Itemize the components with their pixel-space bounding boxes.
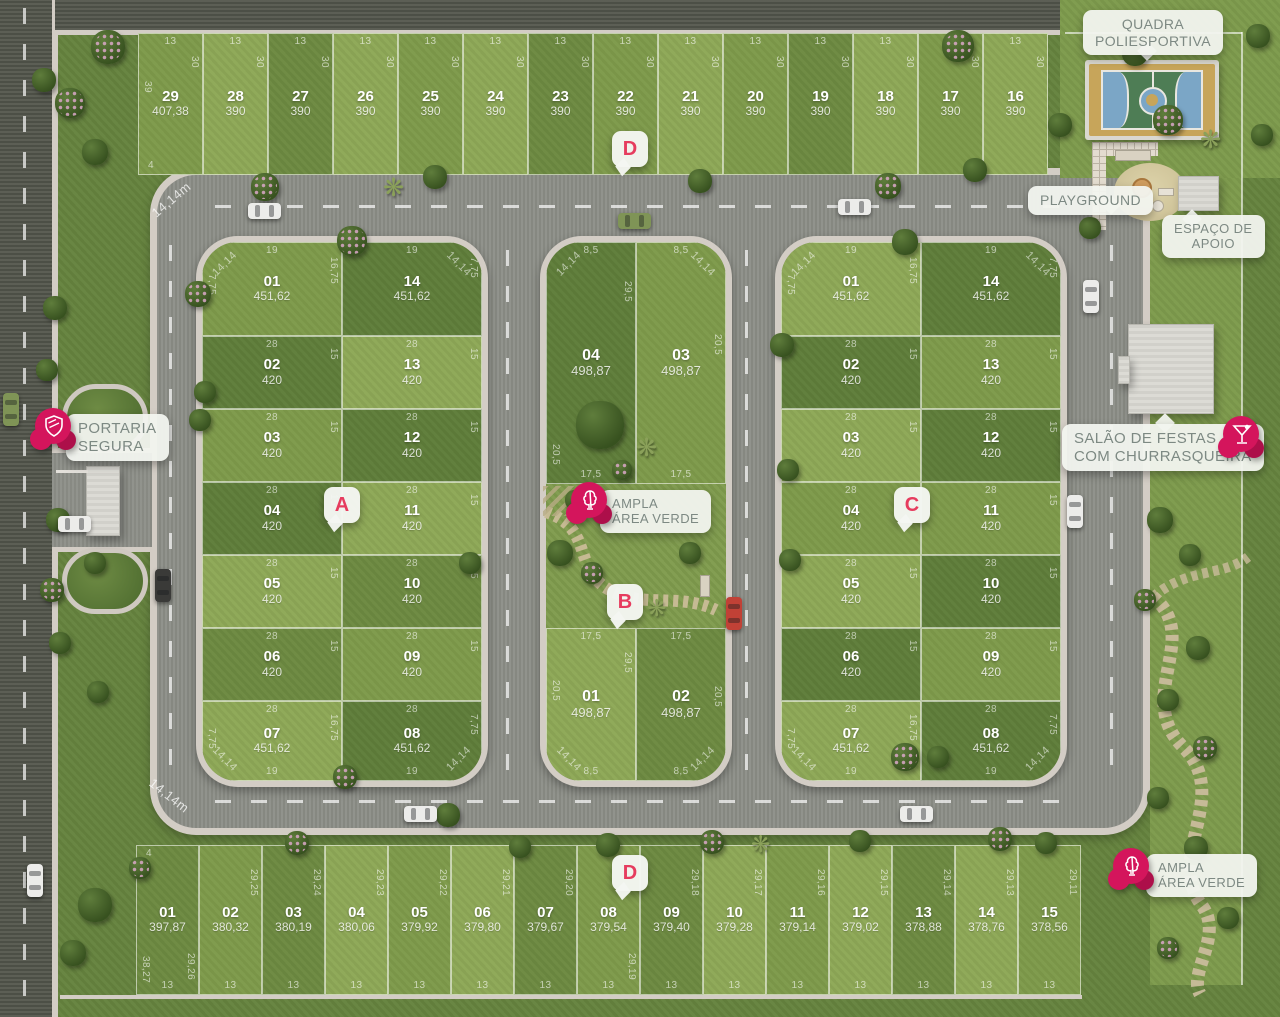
- lot-c-10[interactable]: 104202815: [921, 555, 1061, 628]
- lot-dimension: 13: [703, 981, 766, 991]
- lot-dimension: 8,5: [546, 246, 636, 256]
- lot-number: 11: [983, 503, 999, 520]
- lot-area: 397,87: [149, 921, 186, 935]
- lot-dimension: 15: [328, 567, 338, 579]
- bush-tree: [78, 888, 112, 922]
- street-ab-lane-dashes: [506, 250, 509, 775]
- lot-number: 01: [843, 274, 860, 291]
- lot-bottom-03[interactable]: 03380,191329,24: [262, 845, 325, 995]
- lot-top-18[interactable]: 183901330: [853, 33, 918, 175]
- lot-dimension: 29,17: [752, 869, 762, 896]
- lot-c-08[interactable]: 08451,6228197,75: [921, 701, 1061, 781]
- lot-dimension: 13: [593, 37, 658, 47]
- loop-top-lane-dashes: [215, 205, 1075, 208]
- lot-area: 379,54: [590, 921, 627, 935]
- bush-tree: [87, 681, 109, 703]
- lot-area: 420: [402, 447, 422, 461]
- badge-quadra-b: B: [607, 584, 643, 620]
- lot-bottom-13[interactable]: 13378,881329,14: [892, 845, 955, 995]
- lot-area: 390: [225, 105, 245, 119]
- lot-number: 21: [682, 89, 699, 106]
- lot-dimension: 13: [268, 37, 333, 47]
- lot-dimension: 19: [342, 767, 482, 777]
- lot-area: 390: [615, 105, 635, 119]
- lot-area: 380,06: [338, 921, 375, 935]
- car: [1067, 495, 1083, 528]
- lot-number: 06: [474, 905, 491, 922]
- lot-a-06[interactable]: 064202815: [202, 628, 342, 701]
- car: [900, 806, 933, 822]
- lot-area: 498,87: [661, 364, 701, 379]
- lot-c-06[interactable]: 064202815: [781, 628, 921, 701]
- lot-dimension: 16,75: [328, 714, 338, 741]
- lot-dimension: 8,5: [636, 246, 726, 256]
- lot-area: 451,62: [973, 290, 1010, 304]
- lot-dimension: 13: [199, 981, 262, 991]
- lot-dimension: 30: [709, 56, 719, 68]
- lot-dimension: 28: [202, 559, 342, 569]
- flowering-tree: [700, 830, 724, 854]
- lot-area: 420: [981, 447, 1001, 461]
- top-street-road: [55, 0, 1072, 30]
- bottom-row-sidewalk: [60, 995, 1082, 999]
- lot-dimension: 29,21: [500, 869, 510, 896]
- lot-dimension: 16,75: [907, 714, 917, 741]
- lot-dimension: 30: [579, 56, 589, 68]
- lot-dimension: 13: [955, 981, 1018, 991]
- lot-area: 420: [262, 447, 282, 461]
- lot-bottom-02[interactable]: 02380,321329,25: [199, 845, 262, 995]
- lot-dimension: 15: [468, 421, 478, 433]
- lot-number: 09: [404, 649, 421, 666]
- lot-dimension: 30: [449, 56, 459, 68]
- lot-number: 02: [672, 688, 690, 706]
- bush-tree: [1035, 832, 1057, 854]
- car: [404, 806, 437, 822]
- lot-dimension: 28: [342, 340, 482, 350]
- lot-dimension: 29,15: [878, 869, 888, 896]
- lot-area: 420: [841, 593, 861, 607]
- bush-tree: [777, 459, 799, 481]
- lot-dimension: 30: [319, 56, 329, 68]
- lot-number: 10: [404, 576, 421, 593]
- palm-tree: ❋: [1200, 128, 1221, 153]
- lot-area: 420: [981, 520, 1001, 534]
- lot-top-26[interactable]: 263901330: [333, 33, 398, 175]
- bush-tree: [36, 359, 58, 381]
- label-area-verde-central: AMPLA ÁREA VERDE: [600, 490, 711, 533]
- lot-dimension: 13: [138, 37, 203, 47]
- lot-top-20[interactable]: 203901330: [723, 33, 788, 175]
- lot-number: 16: [1007, 89, 1024, 106]
- flowering-tree: [988, 827, 1012, 851]
- lot-dimension: 29,14: [941, 869, 951, 896]
- lot-dimension: 29,18: [689, 869, 699, 896]
- lot-area: 380,32: [212, 921, 249, 935]
- lot-number: 03: [264, 430, 281, 447]
- lot-dimension: 28: [781, 705, 921, 715]
- palm-tree: ❋: [383, 176, 404, 201]
- gatehouse-building: [86, 466, 120, 536]
- lot-c-11[interactable]: 114202815: [921, 482, 1061, 555]
- lot-number: 19: [812, 89, 829, 106]
- lot-number: 11: [404, 503, 420, 520]
- lot-number: 12: [404, 430, 421, 447]
- bush-tree: [1246, 24, 1270, 48]
- court-bench: [1115, 150, 1151, 161]
- lot-a-07[interactable]: 07451,62281916,757,75: [202, 701, 342, 781]
- bush-tree: [688, 169, 712, 193]
- flowering-tree: [285, 831, 309, 855]
- flowering-tree: [1193, 736, 1217, 760]
- southeast-winding-path: [1128, 552, 1278, 997]
- court-zone-left: [1103, 72, 1129, 128]
- lot-bottom-07[interactable]: 07379,671329,20: [514, 845, 577, 995]
- lot-dimension: 28: [921, 340, 1061, 350]
- flowering-tree: [891, 743, 919, 771]
- flowering-tree: [581, 562, 603, 584]
- lot-dimension: 28: [202, 632, 342, 642]
- playground-bench: [1158, 188, 1174, 196]
- lot-dimension: 15: [907, 567, 917, 579]
- lot-area: 390: [355, 105, 375, 119]
- lot-dimension: 29,16: [815, 869, 825, 896]
- lot-number: 15: [1041, 905, 1058, 922]
- lot-dimension: 38,27: [140, 956, 150, 983]
- lot-dimension: 13: [788, 37, 853, 47]
- lot-area: 407,38: [152, 105, 189, 119]
- lot-dimension: 30: [839, 56, 849, 68]
- badge-letter: C: [905, 494, 919, 517]
- lot-dimension: 28: [781, 559, 921, 569]
- lot-bottom-06[interactable]: 06379,801329,21: [451, 845, 514, 995]
- lot-dimension: 30: [189, 56, 199, 68]
- lot-dimension: 30: [644, 56, 654, 68]
- lot-bottom-15[interactable]: 15378,561329,11: [1018, 845, 1081, 995]
- lot-number: 04: [264, 503, 281, 520]
- lot-dimension: 15: [907, 348, 917, 360]
- support-space-building: [1178, 176, 1219, 211]
- bush-tree: [49, 632, 71, 654]
- flowering-tree: [185, 281, 211, 307]
- lot-a-02[interactable]: 024202815: [202, 336, 342, 409]
- lot-dimension: 28: [921, 632, 1061, 642]
- bush-tree: [194, 381, 216, 403]
- lot-dimension: 28: [921, 486, 1061, 496]
- bush-tree: [1079, 217, 1101, 239]
- label-line: ESPAÇO DE: [1174, 221, 1253, 236]
- lot-dimension: 7,75: [785, 274, 795, 295]
- lot-area: 390: [810, 105, 830, 119]
- lot-number: 04: [843, 503, 860, 520]
- lot-dimension: 30: [904, 56, 914, 68]
- label-espaco-apoio: ESPAÇO DE APOIO: [1162, 215, 1265, 258]
- lot-dimension: 13: [723, 37, 788, 47]
- lot-number: 12: [983, 430, 1000, 447]
- lot-dimension: 28: [781, 632, 921, 642]
- lot-dimension: 28: [202, 705, 342, 715]
- lot-dimension: 13: [1018, 981, 1081, 991]
- lot-dimension: 13: [325, 981, 388, 991]
- lot-number: 08: [404, 726, 421, 743]
- salao-cocktail-icon: [1218, 416, 1266, 464]
- lot-number: 04: [348, 905, 365, 922]
- lot-a-08[interactable]: 08451,6228197,75: [342, 701, 482, 781]
- lot-number: 10: [726, 905, 743, 922]
- bush-tree: [679, 542, 701, 564]
- lot-bottom-05[interactable]: 05379,921329,22: [388, 845, 451, 995]
- lot-dimension: 7,75: [468, 714, 478, 735]
- lot-area: 390: [745, 105, 765, 119]
- lot-bottom-09[interactable]: 09379,401329,18: [640, 845, 703, 995]
- bush-tree: [1179, 544, 1201, 566]
- label-line: APOIO: [1174, 236, 1253, 251]
- lot-area: 390: [875, 105, 895, 119]
- lot-dimension: 13: [388, 981, 451, 991]
- lot-dimension: 30: [384, 56, 394, 68]
- lot-dimension: 20,5: [712, 334, 722, 355]
- lot-dimension: 13: [333, 37, 398, 47]
- lot-a-04[interactable]: 044202815: [202, 482, 342, 555]
- lot-number: 23: [552, 89, 569, 106]
- portaria-shield-icon: [30, 408, 78, 456]
- flowering-tree: [942, 30, 974, 62]
- bush-tree: [423, 165, 447, 189]
- label-quadra-poliesportiva: QUADRA POLIESPORTIVA: [1083, 10, 1223, 55]
- lot-number: 08: [983, 726, 1000, 743]
- lot-number: 17: [942, 89, 959, 106]
- bush-tree: [1157, 689, 1179, 711]
- lot-area: 379,80: [464, 921, 501, 935]
- bush-tree: [963, 158, 987, 182]
- lot-dimension: 39: [142, 81, 152, 93]
- lot-dimension: 28: [921, 705, 1061, 715]
- lot-bottom-04[interactable]: 04380,061329,23: [325, 845, 388, 995]
- lot-dimension: 13: [463, 37, 528, 47]
- flowering-tree: [612, 460, 632, 480]
- lot-a-13[interactable]: 134202815: [342, 336, 482, 409]
- lot-a-05[interactable]: 054202815: [202, 555, 342, 628]
- lot-b-02[interactable]: 02498,8717,58,520,5: [636, 628, 726, 781]
- label-line: PLAYGROUND: [1040, 192, 1141, 209]
- lot-bottom-12[interactable]: 12379,021329,15: [829, 845, 892, 995]
- lot-c-03[interactable]: 034202815: [781, 409, 921, 482]
- lot-dimension: 28: [202, 413, 342, 423]
- lot-number: 07: [264, 726, 281, 743]
- lot-number: 09: [983, 649, 1000, 666]
- lot-dimension: 4: [148, 161, 154, 171]
- lot-dimension: 29,13: [1004, 869, 1014, 896]
- bush-tree: [770, 333, 794, 357]
- lot-dimension: 20,5: [550, 444, 560, 465]
- lot-number: 14: [404, 274, 421, 291]
- lot-dimension: 7,75: [785, 728, 795, 749]
- lot-area: 420: [402, 666, 422, 680]
- lot-area: 420: [262, 593, 282, 607]
- lot-dimension: 28: [921, 413, 1061, 423]
- court-center-dot: [1146, 94, 1158, 106]
- lot-dimension: 29,26: [185, 953, 195, 980]
- lot-dimension: 28: [781, 413, 921, 423]
- badge-letter: D: [623, 138, 637, 161]
- lot-bottom-14[interactable]: 14378,761329,13: [955, 845, 1018, 995]
- lot-number: 14: [983, 274, 1000, 291]
- badge-quadra-a: A: [324, 487, 360, 523]
- lot-c-02[interactable]: 024202815: [781, 336, 921, 409]
- lot-area: 378,56: [1031, 921, 1068, 935]
- lot-bottom-11[interactable]: 11379,141329,16: [766, 845, 829, 995]
- bush-tree: [596, 833, 620, 857]
- lot-area: 379,67: [527, 921, 564, 935]
- lot-dimension: 28: [781, 340, 921, 350]
- lot-dimension: 19: [202, 246, 342, 256]
- lot-top-16[interactable]: 163901330: [983, 33, 1048, 175]
- lot-area: 420: [981, 374, 1001, 388]
- lot-dimension: 29,11: [1067, 869, 1077, 895]
- lot-area: 379,92: [401, 921, 438, 935]
- bush-tree: [1147, 787, 1169, 809]
- property-fence-right: [1241, 32, 1243, 985]
- lot-dimension: 13: [766, 981, 829, 991]
- lot-area: 390: [290, 105, 310, 119]
- flowering-tree: [40, 578, 64, 602]
- left-avenue-road: [0, 0, 52, 1017]
- lot-area: 420: [981, 593, 1001, 607]
- lot-number: 05: [411, 905, 428, 922]
- lot-dimension: 15: [468, 494, 478, 506]
- lot-dimension: 15: [1047, 421, 1057, 433]
- lot-dimension: 13: [203, 37, 268, 47]
- lot-c-12[interactable]: 124202815: [921, 409, 1061, 482]
- lot-c-13[interactable]: 134202815: [921, 336, 1061, 409]
- lot-dimension: 28: [921, 559, 1061, 569]
- lot-number: 13: [404, 357, 421, 374]
- lot-dimension: 29,19: [626, 953, 636, 980]
- lot-area: 420: [841, 374, 861, 388]
- lot-c-05[interactable]: 054202815: [781, 555, 921, 628]
- left-avenue-lane-dashes: [23, 8, 26, 1008]
- lot-dimension: 13: [262, 981, 325, 991]
- lot-area: 420: [841, 520, 861, 534]
- lot-dimension: 13: [853, 37, 918, 47]
- car: [155, 569, 171, 602]
- lot-number: 02: [264, 357, 281, 374]
- bush-tree: [189, 409, 211, 431]
- lot-area: 379,02: [842, 921, 879, 935]
- lot-area: 451,62: [973, 742, 1010, 756]
- badge-quadra-c: C: [894, 487, 930, 523]
- bush-tree: [892, 229, 918, 255]
- lot-top-23[interactable]: 233901330: [528, 33, 593, 175]
- lot-top-29[interactable]: 29407,381343039: [138, 33, 203, 175]
- lot-area: 451,62: [833, 742, 870, 756]
- lot-dimension: 4: [146, 849, 152, 859]
- lot-dimension: 15: [328, 348, 338, 360]
- sports-court: [1085, 60, 1219, 140]
- bush-tree: [927, 746, 949, 768]
- lot-area: 378,88: [905, 921, 942, 935]
- badge-letter: B: [618, 591, 632, 614]
- lot-top-24[interactable]: 243901330: [463, 33, 528, 175]
- lot-area: 390: [1005, 105, 1025, 119]
- lot-a-11[interactable]: 114202815: [342, 482, 482, 555]
- lot-area: 420: [841, 666, 861, 680]
- bush-tree: [1147, 507, 1173, 533]
- lot-top-27[interactable]: 273901330: [268, 33, 333, 175]
- lot-a-12[interactable]: 124202815: [342, 409, 482, 482]
- lot-area: 390: [550, 105, 570, 119]
- lot-top-25[interactable]: 253901330: [398, 33, 463, 175]
- lot-dimension: 28: [342, 486, 482, 496]
- gate-arm-north: [56, 470, 88, 473]
- lot-top-28[interactable]: 283901330: [203, 33, 268, 175]
- playground-table: [1152, 200, 1164, 212]
- lot-dimension: 17,5: [636, 632, 726, 642]
- lot-top-21[interactable]: 213901330: [658, 33, 723, 175]
- lot-bottom-10[interactable]: 10379,281329,17: [703, 845, 766, 995]
- lot-number: 13: [915, 905, 932, 922]
- lot-number: 13: [983, 357, 1000, 374]
- bush-tree: [459, 552, 481, 574]
- lot-area: 390: [485, 105, 505, 119]
- lot-dimension: 15: [1047, 640, 1057, 652]
- car: [1083, 280, 1099, 313]
- bush-tree: [1251, 124, 1273, 146]
- lot-dimension: 7,75: [206, 728, 216, 749]
- lot-area: 498,87: [661, 706, 701, 721]
- lot-dimension: 7,75: [1047, 714, 1057, 735]
- lot-area: 420: [402, 593, 422, 607]
- lot-dimension: 8,5: [636, 767, 726, 777]
- lot-area: 420: [981, 666, 1001, 680]
- lot-dimension: 16,75: [328, 257, 338, 284]
- lot-a-14[interactable]: 14451,62197,75: [342, 242, 482, 336]
- flowering-tree: [333, 765, 357, 789]
- flowering-tree: [875, 173, 901, 199]
- lot-area: 451,62: [394, 290, 431, 304]
- lot-dimension: 15: [907, 640, 917, 652]
- label-line: ÁREA VERDE: [612, 511, 699, 526]
- lot-number: 10: [983, 576, 1000, 593]
- lot-top-19[interactable]: 193901330: [788, 33, 853, 175]
- bush-tree: [1048, 113, 1072, 137]
- bush-tree: [43, 296, 67, 320]
- lot-c-14[interactable]: 14451,62197,75: [921, 242, 1061, 336]
- flowering-tree: [1157, 937, 1179, 959]
- car: [726, 597, 742, 630]
- palm-tree: ❋: [751, 833, 770, 856]
- lot-dimension: 29,24: [311, 869, 321, 896]
- lot-a-09[interactable]: 094202815: [342, 628, 482, 701]
- court-field: [1101, 70, 1203, 130]
- car: [248, 203, 281, 219]
- lot-area: 498,87: [571, 706, 611, 721]
- lot-area: 390: [940, 105, 960, 119]
- loop-bottom-lane-dashes: [215, 800, 1075, 803]
- lot-area: 420: [262, 666, 282, 680]
- badge-quadra-d-bottom: D: [612, 855, 648, 891]
- lot-dimension: 29,20: [563, 869, 573, 896]
- lot-c-09[interactable]: 094202815: [921, 628, 1061, 701]
- lot-dimension: 19: [921, 767, 1061, 777]
- site-plan-canvas: 14,14m 14,14m D A B C D QUADRA POLIESPOR…: [0, 0, 1280, 1017]
- lot-a-03[interactable]: 034202815: [202, 409, 342, 482]
- street-bc-lane-dashes: [745, 250, 748, 775]
- lot-dimension: 28: [202, 340, 342, 350]
- bush-tree: [60, 940, 86, 966]
- label-line: AMPLA: [1158, 860, 1245, 875]
- lot-dimension: 29,23: [374, 869, 384, 896]
